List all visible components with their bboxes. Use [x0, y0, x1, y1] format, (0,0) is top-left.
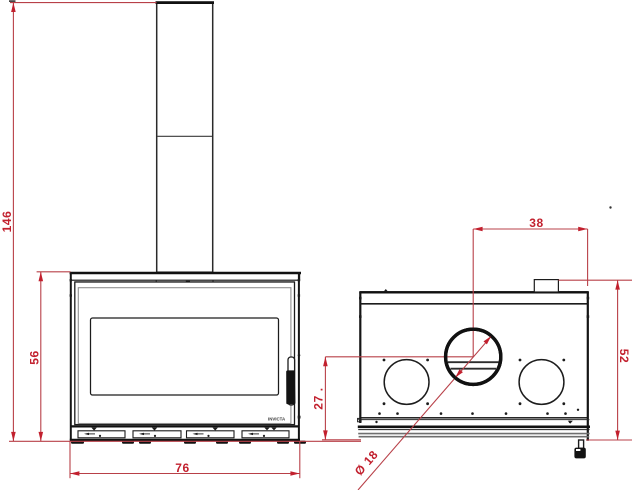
svg-text:52: 52: [617, 349, 631, 364]
svg-text:76: 76: [175, 461, 190, 475]
svg-text:INVICTA: INVICTA: [268, 417, 286, 422]
svg-text:146: 146: [0, 211, 14, 233]
svg-text:38: 38: [529, 216, 544, 230]
svg-text:27 .: 27 .: [312, 387, 326, 409]
svg-text:56: 56: [28, 350, 42, 365]
